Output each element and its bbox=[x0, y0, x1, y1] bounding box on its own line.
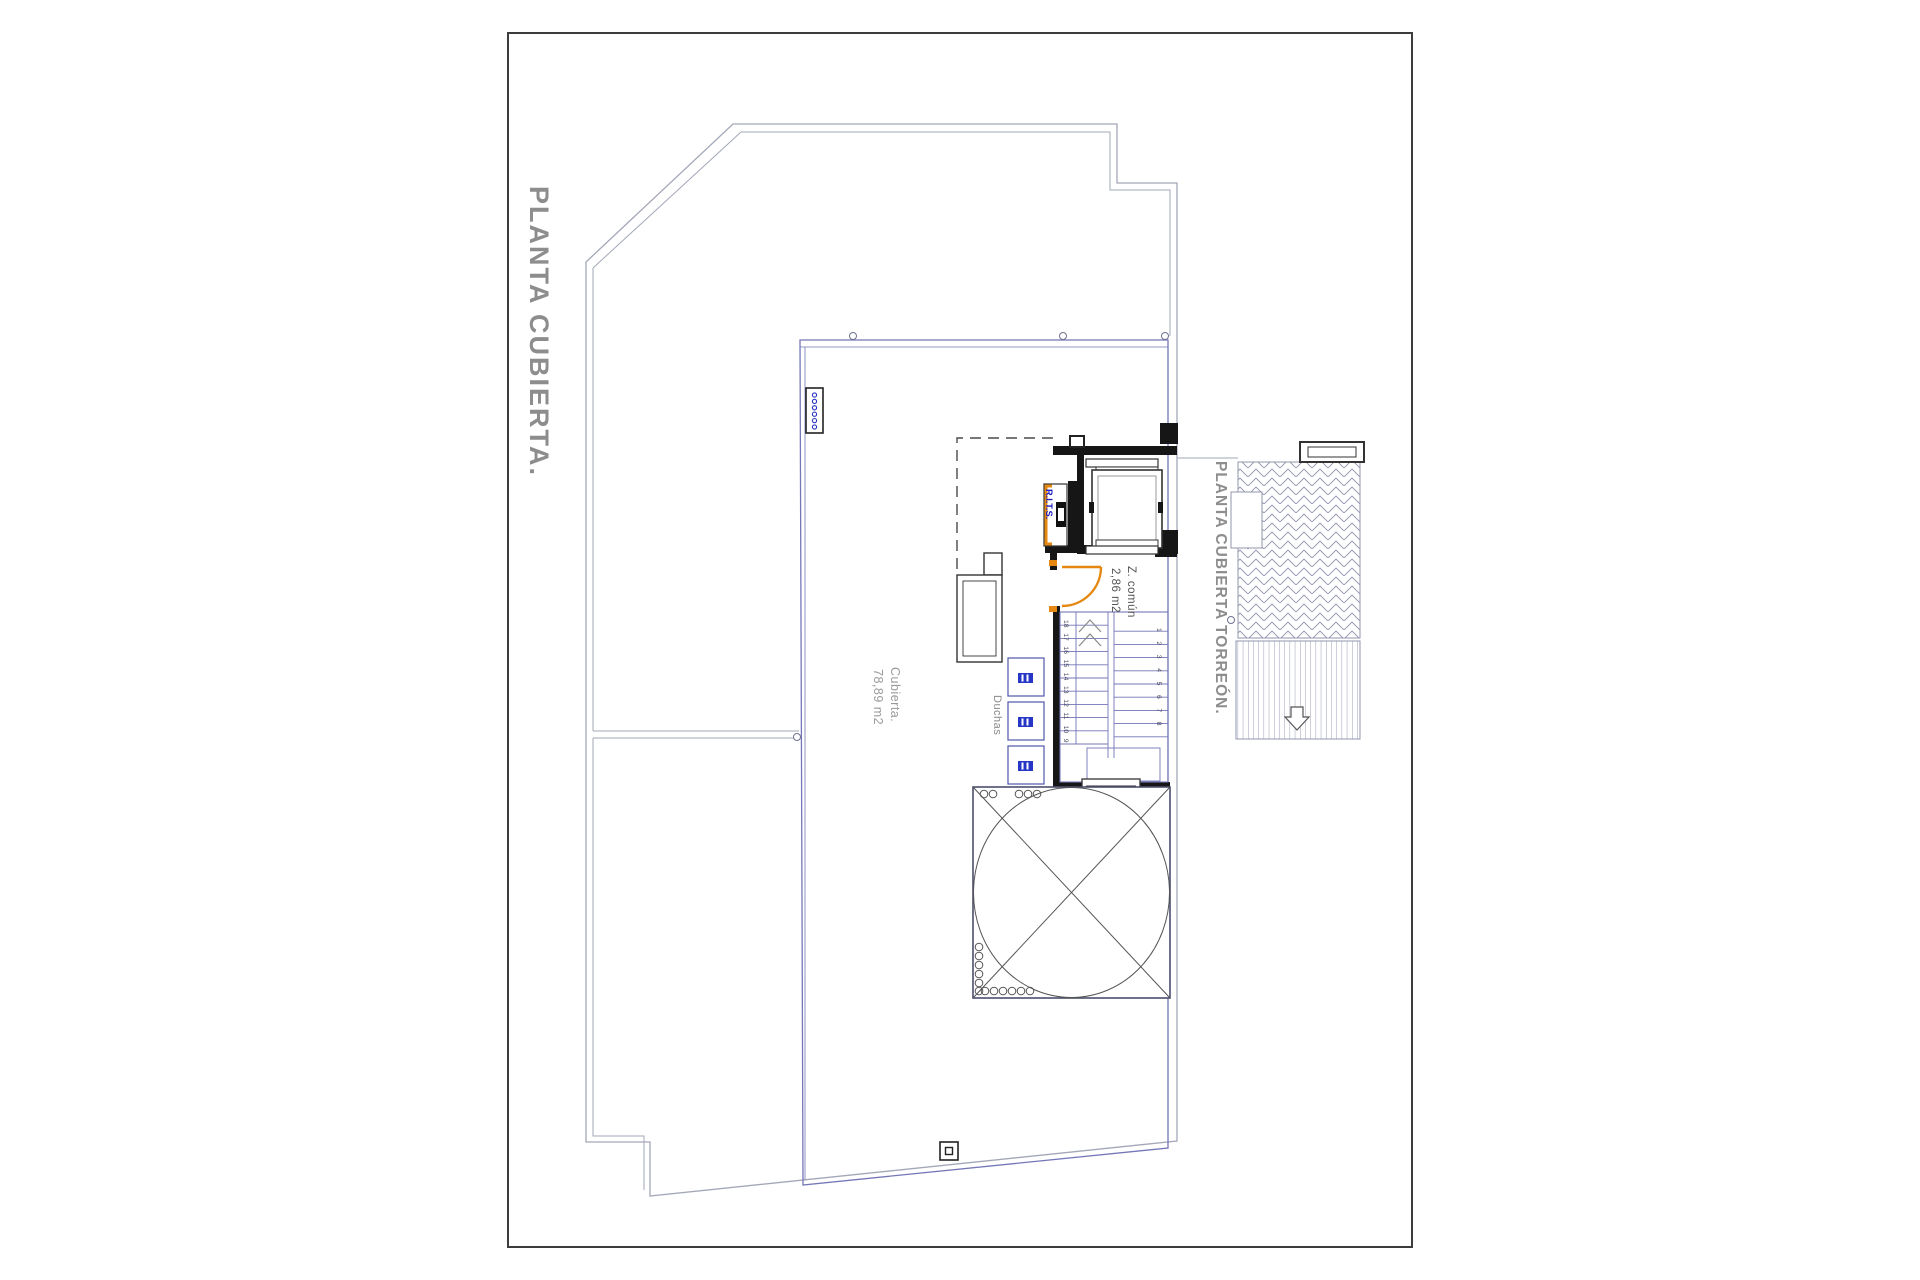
elevator-door-bottom-inner bbox=[1096, 540, 1158, 546]
elevator-door-top bbox=[1086, 459, 1158, 467]
point-marker-icon bbox=[1060, 333, 1067, 340]
zcomun-area-label: 2,86 m2 bbox=[1109, 568, 1121, 613]
point-marker-icon bbox=[794, 734, 801, 741]
showers bbox=[1008, 658, 1044, 784]
svg-text:7: 7 bbox=[1155, 708, 1162, 712]
shower-icon bbox=[1018, 673, 1033, 683]
torreon-title: PLANTA CUBIERTA TORREÓN. bbox=[1212, 461, 1230, 715]
svg-text:4: 4 bbox=[1155, 668, 1162, 672]
wall-pillar bbox=[1070, 436, 1084, 447]
drain-symbol-icon bbox=[940, 1142, 958, 1160]
svg-text:14: 14 bbox=[1062, 673, 1069, 681]
page-title: PLANTA CUBIERTA. bbox=[524, 186, 554, 477]
torreon-notch bbox=[1231, 492, 1262, 548]
svg-text:3: 3 bbox=[1155, 655, 1162, 659]
point-marker-icon bbox=[1162, 333, 1169, 340]
floor-plan-page: PLANTA CUBIERTA. bbox=[0, 0, 1920, 1280]
plan-drawing: PLANTA CUBIERTA. bbox=[0, 0, 1920, 1280]
torreon-hatch-area bbox=[1238, 462, 1360, 638]
svg-text:9: 9 bbox=[1062, 739, 1069, 743]
chimney-inner bbox=[1308, 447, 1356, 457]
shower-icon-slit bbox=[1027, 675, 1029, 682]
svg-text:8: 8 bbox=[1155, 722, 1162, 726]
svg-text:6: 6 bbox=[1155, 695, 1162, 699]
bench-small-box bbox=[984, 553, 1002, 575]
svg-text:1: 1 bbox=[1155, 628, 1162, 632]
elevator-rail-icon bbox=[1089, 502, 1094, 513]
bench-outline bbox=[957, 575, 1002, 662]
rits-label: R.I.T.S. bbox=[1044, 489, 1054, 519]
svg-text:10: 10 bbox=[1062, 726, 1069, 734]
duchas-label: Duchas bbox=[991, 695, 1003, 735]
svg-text:11: 11 bbox=[1062, 712, 1069, 719]
shower-icon-slit bbox=[1027, 763, 1029, 770]
svg-text:2: 2 bbox=[1155, 641, 1162, 645]
svg-text:5: 5 bbox=[1155, 682, 1162, 686]
shower-icon-slit bbox=[1022, 763, 1024, 770]
rits-equipment-notch bbox=[1058, 508, 1064, 521]
zcomun-label: Z. común bbox=[1125, 566, 1137, 618]
wall-segment bbox=[1053, 606, 1060, 790]
elevator bbox=[1086, 459, 1163, 554]
door-jamb bbox=[1049, 560, 1057, 566]
elevator-rail-icon bbox=[1158, 502, 1163, 513]
shower-icon bbox=[1018, 717, 1033, 727]
door-jamb bbox=[1049, 606, 1057, 612]
shower-icon-slit bbox=[1022, 719, 1024, 726]
wall-segment bbox=[1160, 423, 1178, 444]
rits-cabinet: R.I.T.S. bbox=[1044, 484, 1067, 546]
elevator-cab bbox=[1092, 470, 1162, 548]
svg-text:17: 17 bbox=[1062, 633, 1069, 641]
svg-text:18: 18 bbox=[1062, 620, 1069, 628]
shower-icon-slit bbox=[1027, 719, 1029, 726]
wall-segment bbox=[1068, 481, 1077, 547]
wall-segment bbox=[1077, 455, 1084, 545]
svg-text:13: 13 bbox=[1062, 686, 1069, 694]
point-marker-icon bbox=[850, 333, 857, 340]
svg-text:15: 15 bbox=[1062, 660, 1069, 668]
elevator-door-bottom bbox=[1086, 546, 1158, 554]
svg-text:16: 16 bbox=[1062, 646, 1069, 654]
svg-text:12: 12 bbox=[1062, 699, 1069, 707]
roof-grate-icon bbox=[806, 388, 823, 433]
cubierta-area-label: 78,89 m2 bbox=[871, 669, 885, 725]
skylight bbox=[973, 787, 1170, 998]
cubierta-label: Cubierta. bbox=[888, 667, 902, 722]
shower-icon-slit bbox=[1022, 675, 1024, 682]
shower-icon bbox=[1018, 761, 1033, 771]
